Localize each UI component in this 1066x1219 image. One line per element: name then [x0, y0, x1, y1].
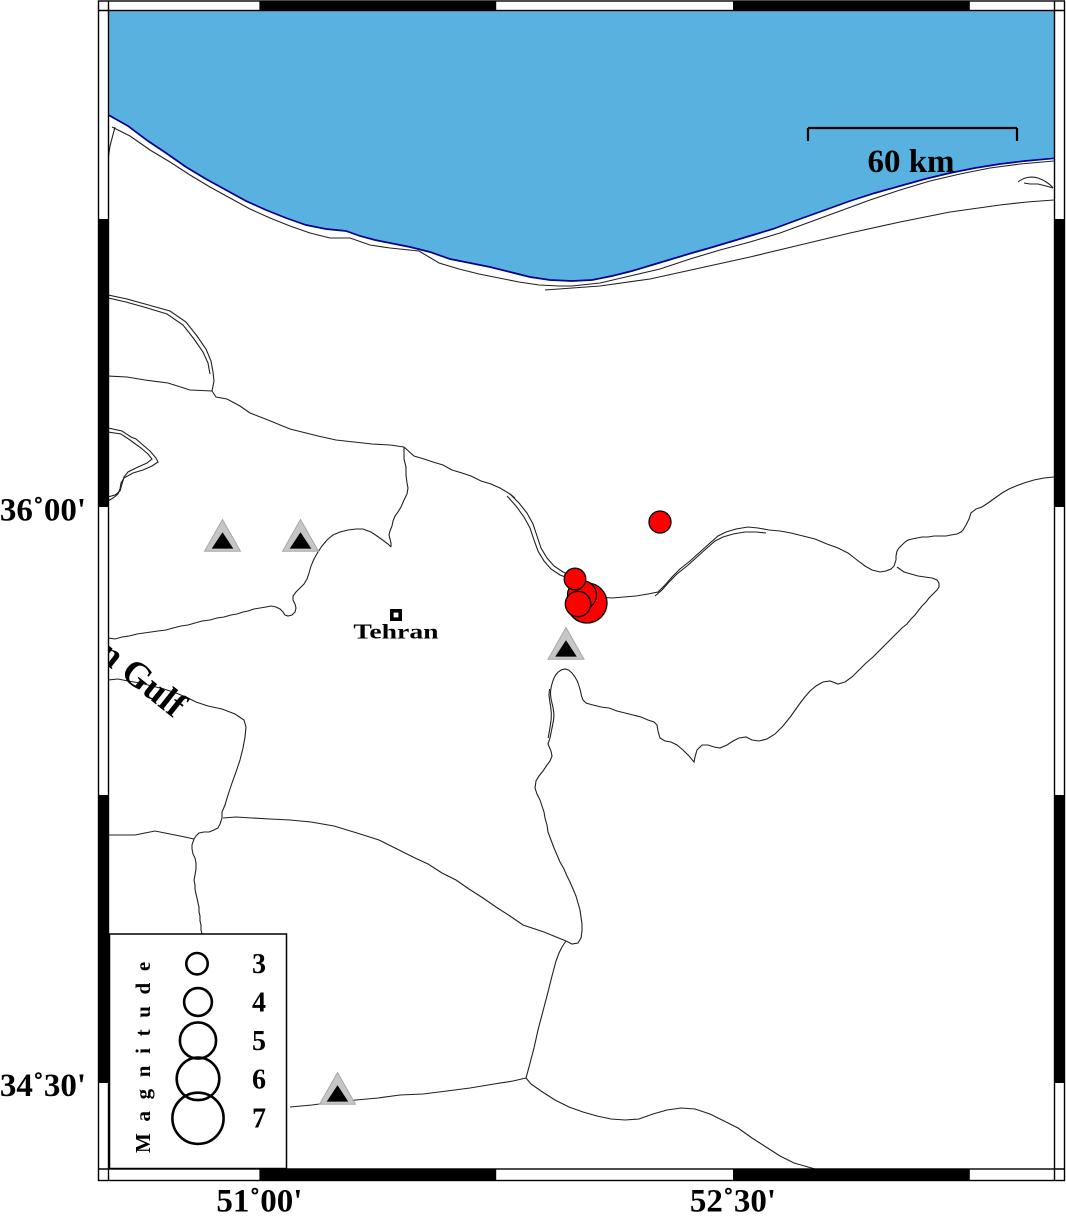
svg-text:52˚30': 52˚30'	[690, 1184, 776, 1219]
svg-text:51˚00': 51˚00'	[216, 1184, 302, 1219]
svg-text:Tehran: Tehran	[353, 621, 439, 644]
svg-text:3: 3	[252, 949, 266, 980]
svg-text:34˚30': 34˚30'	[0, 1068, 86, 1104]
svg-text:7: 7	[252, 1104, 266, 1135]
svg-text:n Gulf: n Gulf	[92, 632, 195, 726]
svg-text:4: 4	[252, 988, 266, 1019]
svg-text:60 km: 60 km	[867, 144, 954, 180]
svg-text:M a g n i t u d e: M a g n i t u d e	[131, 959, 155, 1153]
svg-text:6: 6	[252, 1065, 266, 1096]
svg-text:5: 5	[252, 1026, 266, 1057]
svg-text:36˚00': 36˚00'	[0, 493, 86, 529]
